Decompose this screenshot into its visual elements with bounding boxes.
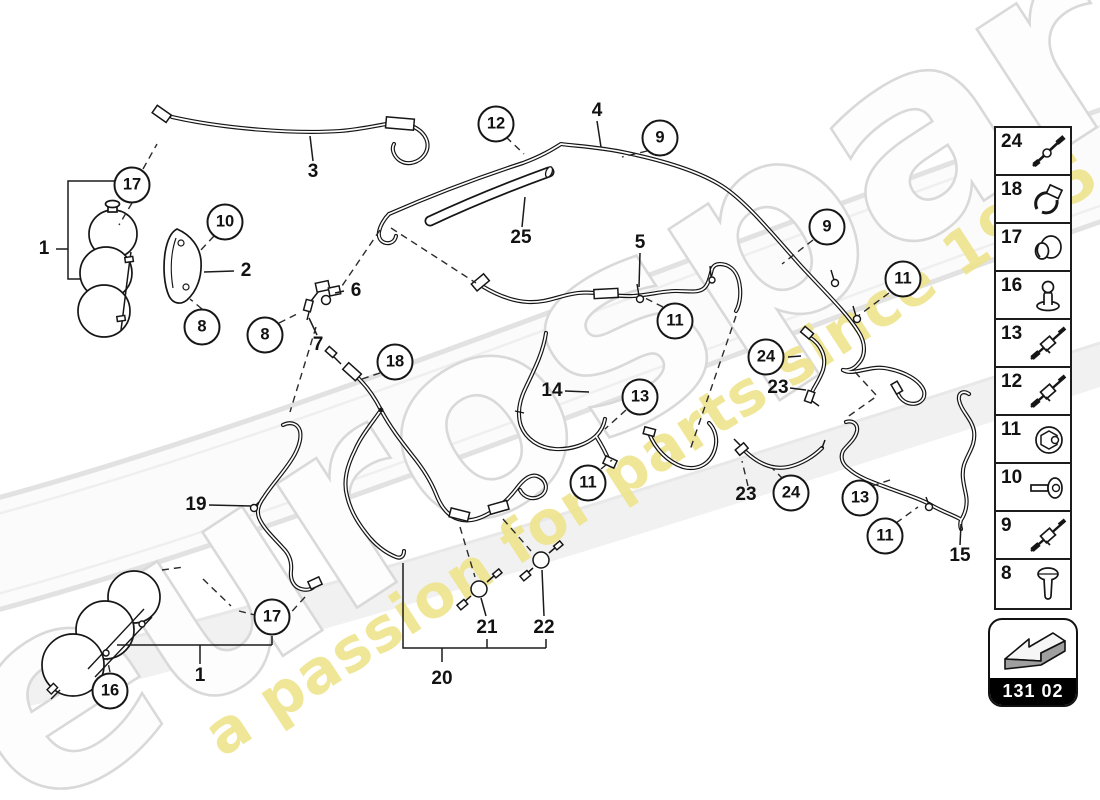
callout-24[interactable]: 24 (773, 475, 810, 512)
pin-icon (1026, 274, 1070, 318)
legend-number: 10 (1001, 467, 1022, 510)
round-grommet-icon (1026, 418, 1070, 462)
legend-number: 9 (1001, 515, 1012, 558)
callout-18[interactable]: 18 (377, 344, 414, 381)
legend-number: 17 (1001, 227, 1022, 270)
grommet-cone-icon (1026, 226, 1070, 270)
part-label-19: 19 (185, 494, 206, 516)
legend-number: 24 (1001, 131, 1022, 174)
callout-8[interactable]: 8 (184, 309, 221, 346)
part-label-22: 22 (533, 617, 554, 639)
part-label-23: 23 (767, 377, 788, 399)
part-label-7: 7 (313, 334, 324, 356)
screw-washer-icon (1026, 466, 1070, 510)
callout-24[interactable]: 24 (748, 339, 785, 376)
part-label-21: 21 (476, 617, 497, 639)
callout-8[interactable]: 8 (247, 317, 284, 354)
part-label-25: 25 (510, 227, 531, 249)
back-arrow-icon (991, 621, 1076, 681)
bracket-part (164, 229, 201, 303)
legend-number: 13 (1001, 323, 1022, 366)
callout-13[interactable]: 13 (622, 379, 659, 416)
legend-item-13[interactable]: 13 (996, 320, 1070, 368)
part-label-4: 4 (592, 100, 603, 122)
callout-11[interactable]: 11 (885, 261, 922, 298)
hose-junction (379, 408, 384, 413)
callout-16[interactable]: 16 (92, 673, 129, 710)
part-label-20: 20 (431, 668, 452, 690)
legend-item-17[interactable]: 17 (996, 224, 1070, 272)
callout-11[interactable]: 11 (867, 518, 904, 555)
legend-number: 18 (1001, 179, 1022, 222)
fastener-legend: 24 18 17 (994, 126, 1072, 610)
dome-screw-icon (1026, 562, 1070, 606)
part-label-2: 2 (241, 260, 252, 282)
diagram-code: 131 02 (1002, 681, 1063, 702)
parts-diagram-page: eurospares a passion for parts since 198… (0, 0, 1100, 800)
legend-number: 12 (1001, 371, 1022, 414)
legend-item-16[interactable]: 16 (996, 272, 1070, 320)
legend-number: 16 (1001, 275, 1022, 318)
legend-item-24[interactable]: 24 (996, 128, 1070, 176)
callout-13[interactable]: 13 (842, 480, 879, 517)
callout-17[interactable]: 17 (114, 167, 151, 204)
part-label-14: 14 (541, 380, 562, 402)
part-label-1: 1 (39, 238, 50, 260)
legend-item-9[interactable]: 9 (996, 512, 1070, 560)
clip-icon (1026, 178, 1070, 222)
callout-10[interactable]: 10 (207, 204, 244, 241)
callout-17[interactable]: 17 (254, 599, 291, 636)
legend-item-10[interactable]: 10 (996, 464, 1070, 512)
legend-item-12[interactable]: 12 (996, 368, 1070, 416)
part-label-1: 1 (195, 665, 206, 687)
legend-number: 11 (1001, 419, 1021, 462)
hose-clamp-icon (1026, 514, 1070, 558)
solenoid-valve-part (304, 281, 341, 320)
part-label-5: 5 (635, 232, 646, 254)
legend-item-8[interactable]: 8 (996, 560, 1070, 608)
callout-11[interactable]: 11 (657, 303, 694, 340)
part-label-23: 23 (735, 484, 756, 506)
part-label-3: 3 (308, 161, 319, 183)
callout-12[interactable]: 12 (478, 106, 515, 143)
callout-9[interactable]: 9 (642, 120, 679, 157)
callout-11[interactable]: 11 (570, 465, 607, 502)
vacuum-line-icon (1026, 130, 1070, 174)
part-label-6: 6 (351, 280, 362, 302)
part-label-15: 15 (949, 545, 970, 567)
diagram-code-bar: 131 02 (990, 678, 1076, 705)
legend-item-11[interactable]: 11 (996, 416, 1070, 464)
legend-item-18[interactable]: 18 (996, 176, 1070, 224)
callout-9[interactable]: 9 (809, 209, 846, 246)
hose-clamp-icon (1026, 370, 1070, 414)
legend-number: 8 (1001, 563, 1012, 608)
diagram-code-box[interactable]: 131 02 (988, 618, 1078, 707)
hose-clamp-icon (1026, 322, 1070, 366)
